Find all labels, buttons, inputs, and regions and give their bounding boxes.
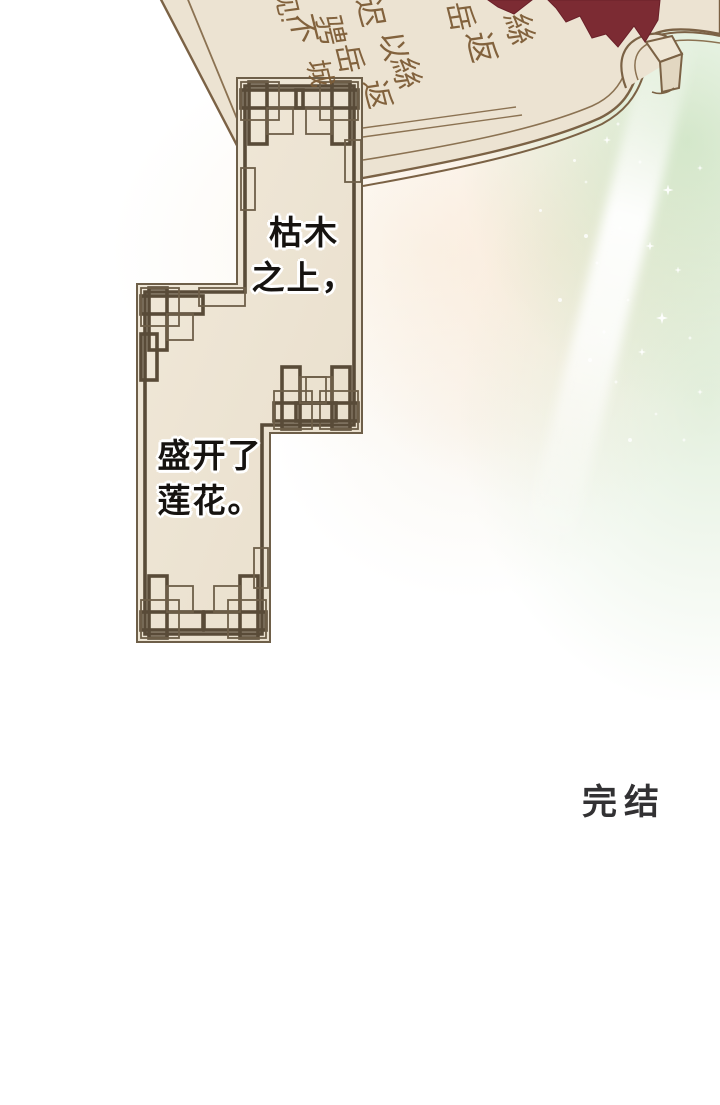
speech-line: 之上，: [248, 255, 360, 300]
page-roll: [621, 34, 682, 94]
ending-label: 完结: [576, 774, 672, 825]
speech-line: 莲花。: [152, 478, 268, 523]
speech-text-top: 枯木 之上，: [248, 210, 360, 300]
speech-line: 盛开了: [152, 433, 268, 478]
comic-page: .fr-thick{fill:none; stroke:#594b38; str…: [0, 0, 720, 1105]
speech-text-bottom: 盛开了 莲花。: [152, 433, 268, 523]
speech-line: 枯木: [248, 210, 360, 255]
book-illustration: .fr-thick{fill:none; stroke:#594b38; str…: [0, 0, 720, 700]
panel-frame: [137, 78, 362, 642]
